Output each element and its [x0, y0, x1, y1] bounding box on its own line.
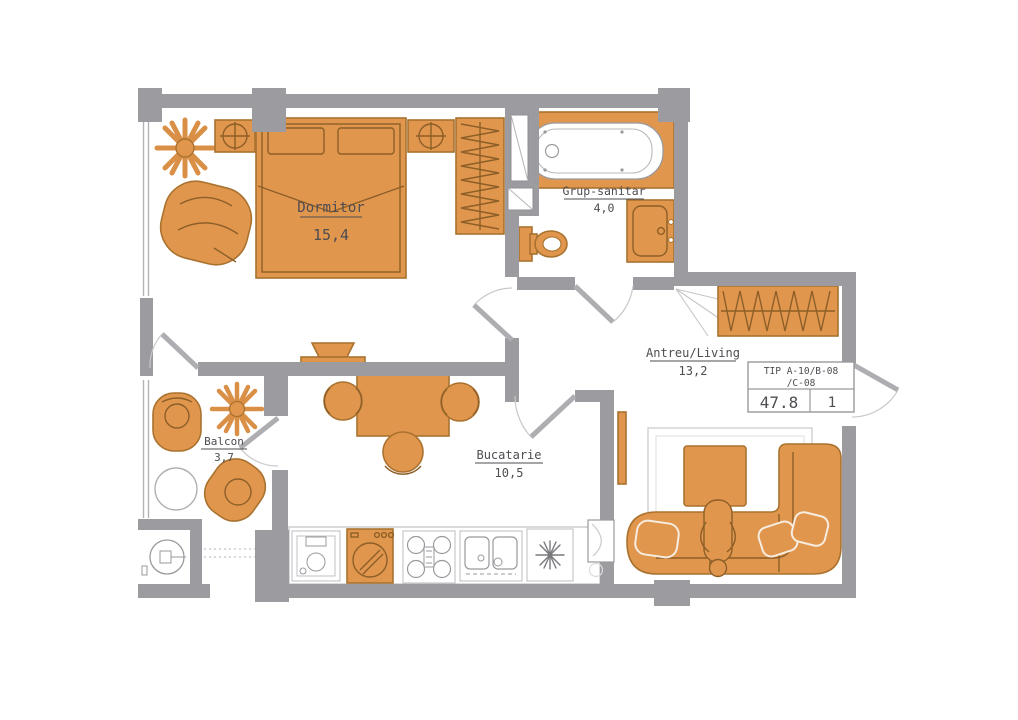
balcony-plant-icon — [212, 384, 262, 434]
living-tv-icon — [618, 412, 626, 484]
balcony-table — [155, 468, 197, 510]
room-area-dormitor: 15,4 — [313, 226, 349, 244]
bathtub — [519, 112, 674, 188]
bedroom-tv-icon — [301, 343, 365, 363]
hall-wardrobe — [718, 286, 838, 336]
floor-plan: Dormitor 15,4 Grup-sanitar 4,0 Antreu/Li… — [0, 0, 1018, 720]
plant-icon — [157, 120, 213, 176]
kitchen-furniture — [289, 372, 600, 584]
counter-plant-icon — [527, 529, 573, 581]
bedroom-armchair — [154, 175, 258, 272]
room-label-bucatarie: Bucatarie — [476, 448, 541, 462]
room-area-antreu-living: 13,2 — [679, 364, 708, 378]
room-area-grup-sanitar: 4,0 — [594, 201, 615, 215]
bedroom-wardrobe — [456, 118, 504, 234]
coffee-table — [684, 446, 746, 506]
balcony-armchair-bottom — [196, 450, 275, 530]
floor-plan-page: Dormitor 15,4 Grup-sanitar 4,0 Antreu/Li… — [0, 0, 1018, 720]
room-label-dormitor: Dormitor — [297, 200, 364, 216]
title-block-type-line1: TIP A-10/B-08 — [764, 366, 839, 377]
title-block-total-area: 47.8 — [760, 393, 799, 412]
room-area-balcon: 3,7 — [214, 451, 234, 464]
bathroom-vanity — [627, 200, 674, 262]
title-block-type-line2: /C-08 — [787, 378, 816, 389]
nightstand-right — [408, 120, 454, 152]
nightstand-left — [215, 120, 255, 152]
stove — [403, 531, 455, 583]
fridge — [292, 531, 340, 581]
toilet — [519, 227, 567, 261]
living-furniture — [618, 286, 841, 577]
kitchen-counter — [289, 527, 600, 584]
room-area-bucatarie: 10,5 — [495, 466, 524, 480]
room-label-balcon: Balcon — [204, 435, 244, 448]
room-label-grup-sanitar: Grup-sanitar — [562, 184, 645, 198]
room-label-antreu-living: Antreu/Living — [646, 346, 740, 360]
kitchen-sink — [460, 531, 522, 581]
title-block: TIP A-10/B-08 /C-08 47.8 1 — [748, 362, 854, 412]
balcony-armchair-top — [153, 393, 201, 451]
utility-closet — [142, 540, 186, 575]
title-block-rooms-count: 1 — [828, 395, 836, 411]
double-bed — [256, 118, 406, 278]
dining-table — [357, 372, 449, 436]
washing-machine — [347, 529, 393, 583]
